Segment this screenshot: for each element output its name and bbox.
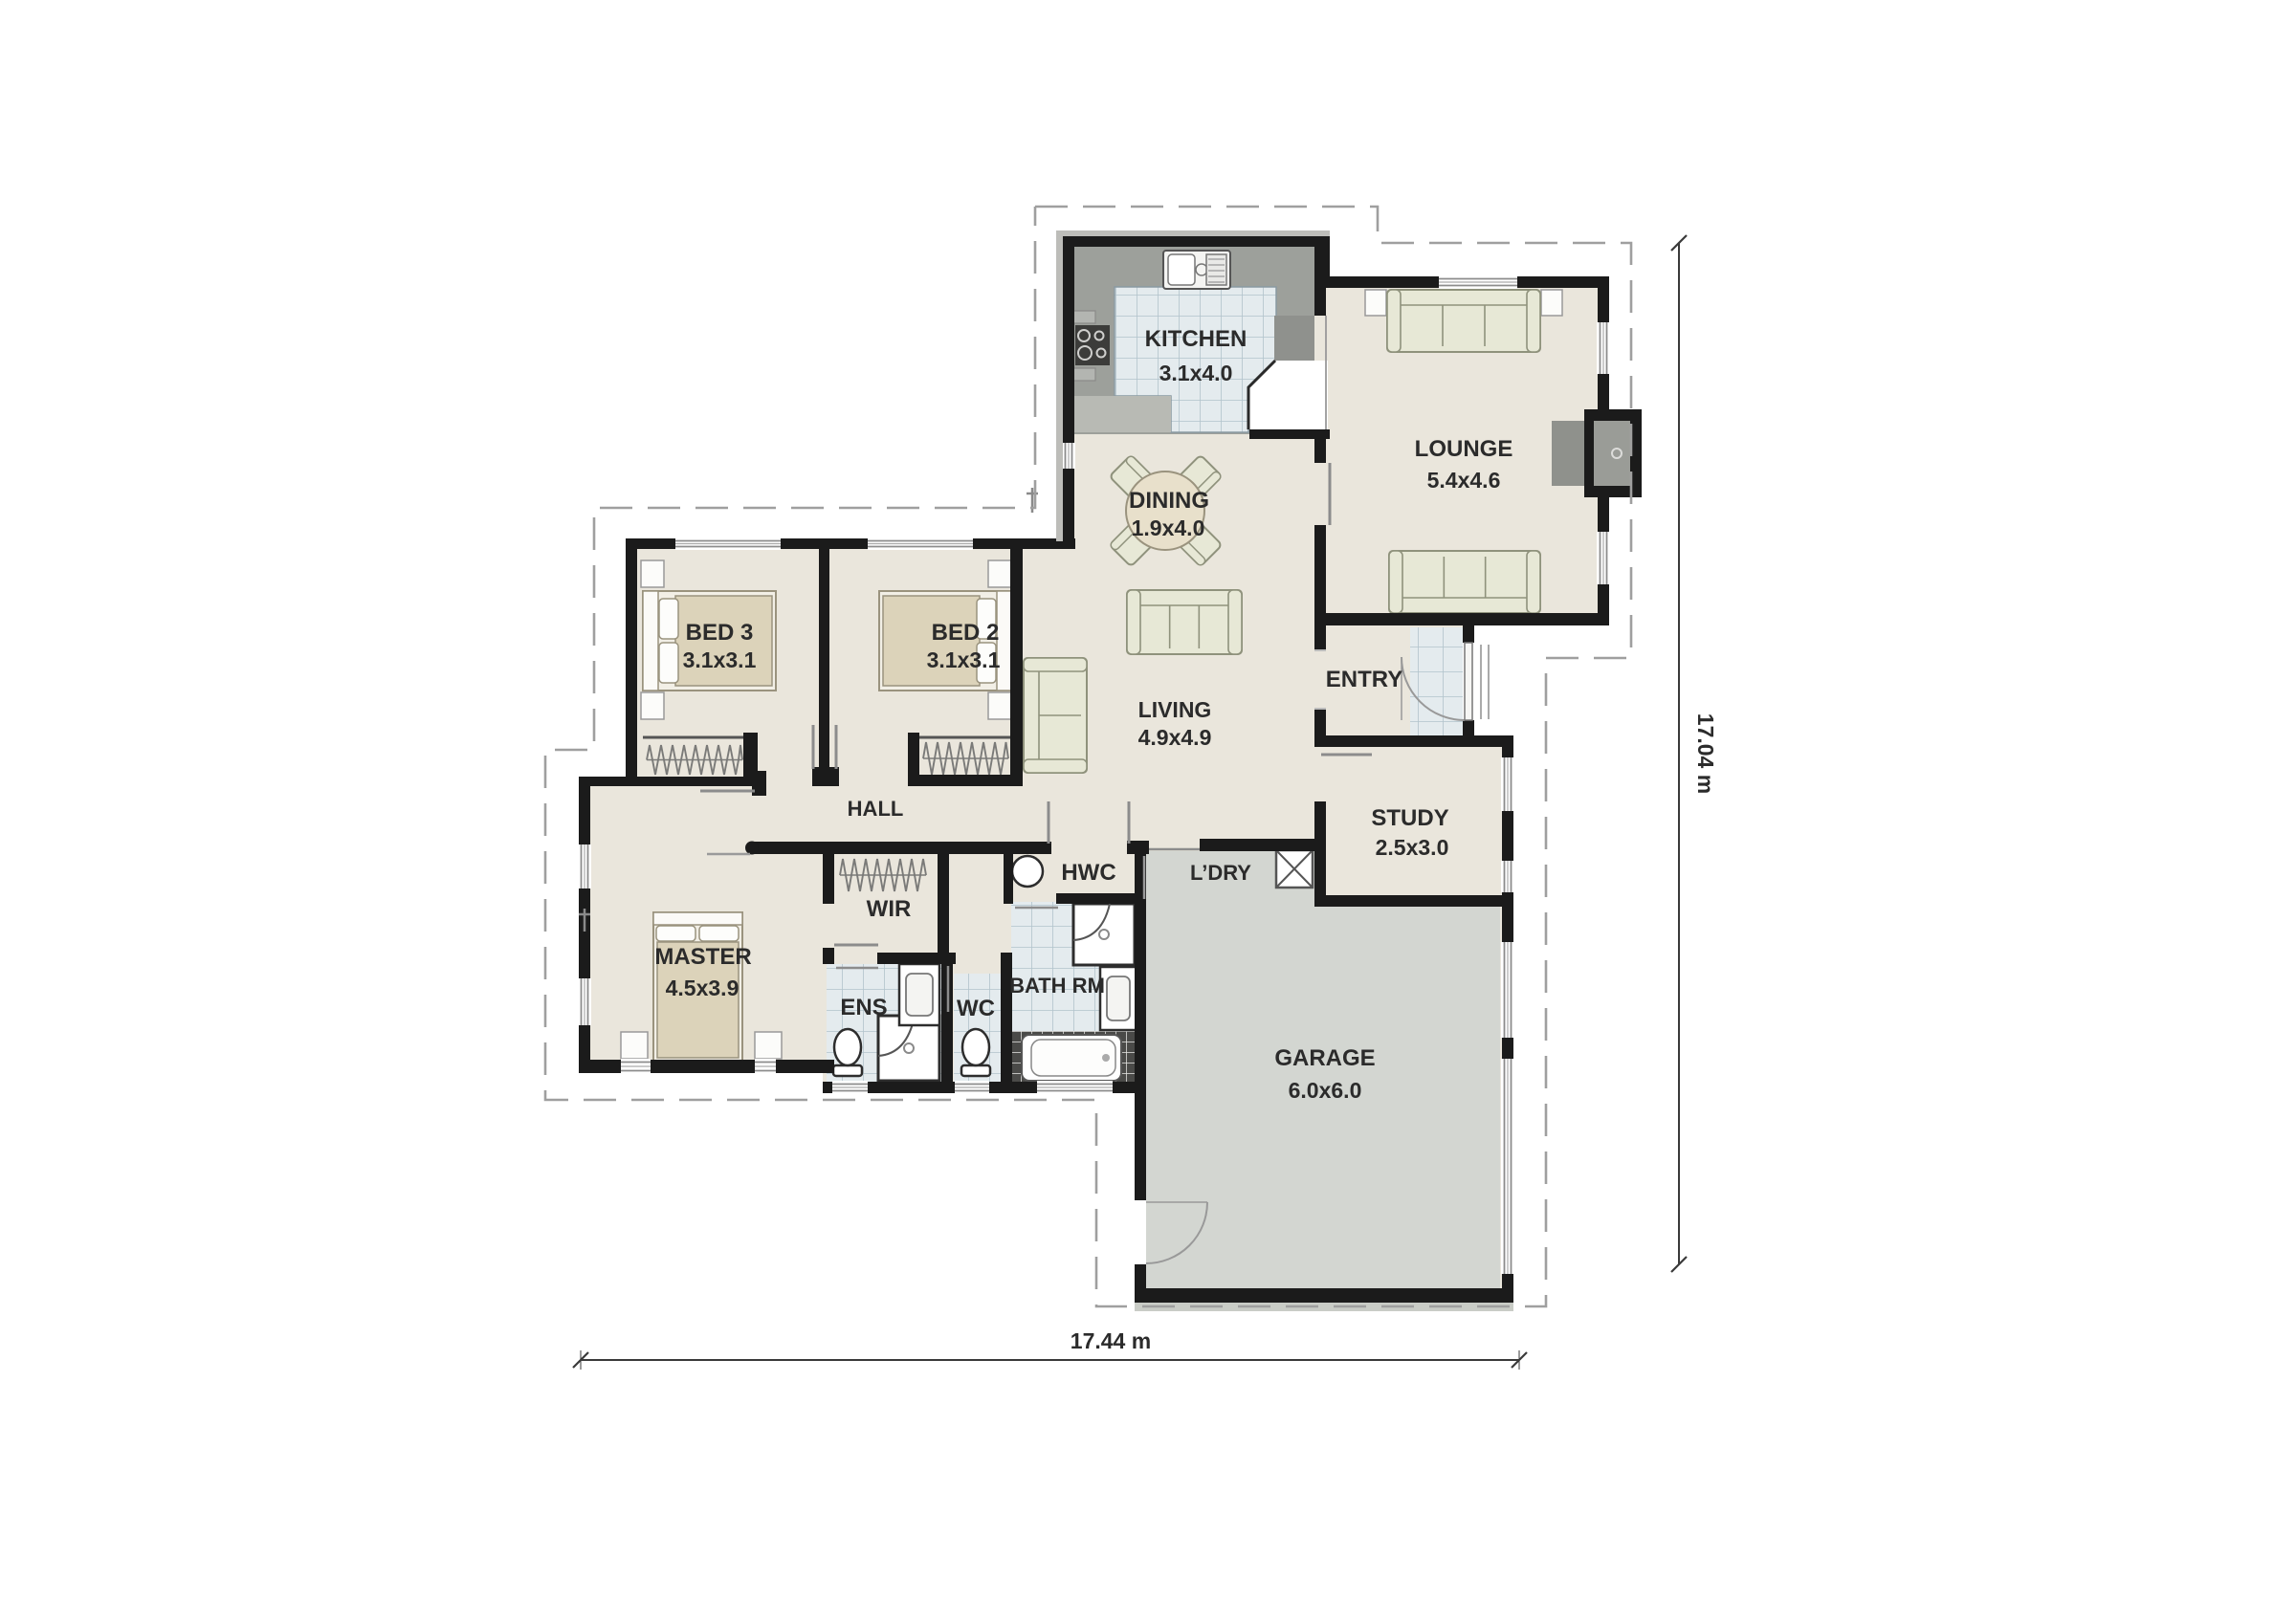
svg-text:HALL: HALL	[848, 797, 904, 821]
svg-text:GARAGE: GARAGE	[1274, 1045, 1375, 1071]
svg-text:L’DRY: L’DRY	[1190, 861, 1251, 885]
svg-text:5.4x4.6: 5.4x4.6	[1427, 468, 1501, 493]
svg-text:BED 2: BED 2	[932, 620, 1000, 646]
svg-text:LOUNGE: LOUNGE	[1415, 436, 1513, 462]
svg-text:4.5x3.9: 4.5x3.9	[666, 976, 740, 1000]
svg-text:BATH RM: BATH RM	[1009, 974, 1105, 998]
svg-text:BED 3: BED 3	[686, 620, 754, 646]
svg-text:MASTER: MASTER	[654, 944, 751, 970]
svg-text:LIVING: LIVING	[1138, 697, 1212, 722]
svg-text:4.9x4.9: 4.9x4.9	[1138, 725, 1212, 750]
svg-text:6.0x6.0: 6.0x6.0	[1289, 1078, 1362, 1103]
svg-text:WC: WC	[957, 996, 995, 1021]
svg-text:DINING: DINING	[1129, 488, 1209, 514]
svg-text:STUDY: STUDY	[1371, 805, 1448, 831]
svg-text:17.04 m: 17.04 m	[1693, 713, 1718, 794]
svg-text:ENTRY: ENTRY	[1326, 667, 1402, 692]
svg-text:3.1x4.0: 3.1x4.0	[1159, 361, 1233, 385]
svg-text:KITCHEN: KITCHEN	[1145, 326, 1247, 352]
svg-text:17.44 m: 17.44 m	[1071, 1328, 1151, 1353]
svg-text:HWC: HWC	[1061, 860, 1115, 886]
svg-text:ENS: ENS	[840, 995, 887, 1020]
svg-text:3.1x3.1: 3.1x3.1	[683, 647, 757, 672]
svg-text:WIR: WIR	[867, 896, 912, 922]
svg-text:1.9x4.0: 1.9x4.0	[1132, 515, 1205, 540]
svg-text:3.1x3.1: 3.1x3.1	[927, 647, 1001, 672]
svg-text:2.5x3.0: 2.5x3.0	[1376, 835, 1449, 860]
